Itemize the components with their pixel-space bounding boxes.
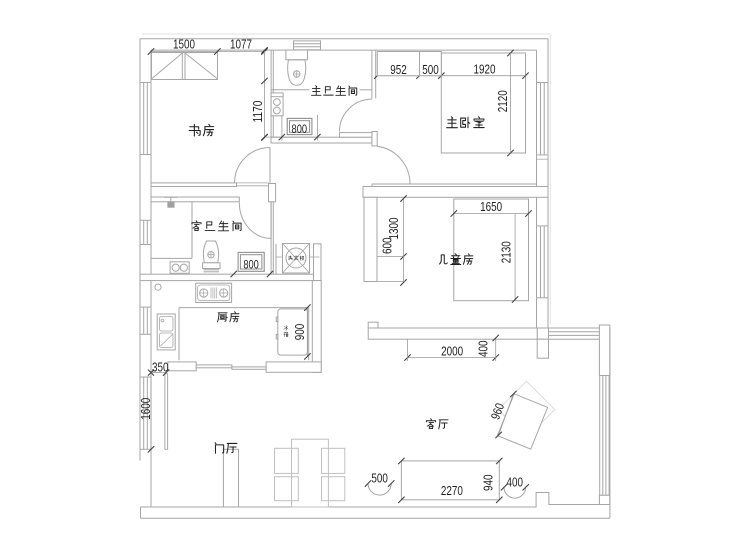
svg-text:952: 952 xyxy=(390,63,407,77)
svg-text:2120: 2120 xyxy=(496,90,510,112)
svg-text:1500: 1500 xyxy=(173,38,195,52)
svg-text:1920: 1920 xyxy=(474,63,496,77)
svg-text:600: 600 xyxy=(381,238,395,255)
svg-text:1600: 1600 xyxy=(139,398,153,420)
svg-text:1300: 1300 xyxy=(387,217,401,239)
svg-text:500: 500 xyxy=(371,472,388,486)
svg-text:400: 400 xyxy=(507,476,524,490)
svg-text:1650: 1650 xyxy=(480,200,502,214)
svg-text:2130: 2130 xyxy=(500,241,514,263)
svg-text:900: 900 xyxy=(293,324,307,341)
svg-text:350: 350 xyxy=(152,361,169,375)
svg-text:1170: 1170 xyxy=(251,100,265,122)
svg-text:500: 500 xyxy=(422,63,439,77)
svg-text:400: 400 xyxy=(477,340,491,357)
svg-text:800: 800 xyxy=(243,257,259,271)
svg-text:2270: 2270 xyxy=(441,484,463,498)
svg-text:2000: 2000 xyxy=(441,345,463,359)
svg-text:940: 940 xyxy=(482,474,496,491)
svg-text:800: 800 xyxy=(292,122,308,136)
svg-text:1077: 1077 xyxy=(230,38,252,52)
